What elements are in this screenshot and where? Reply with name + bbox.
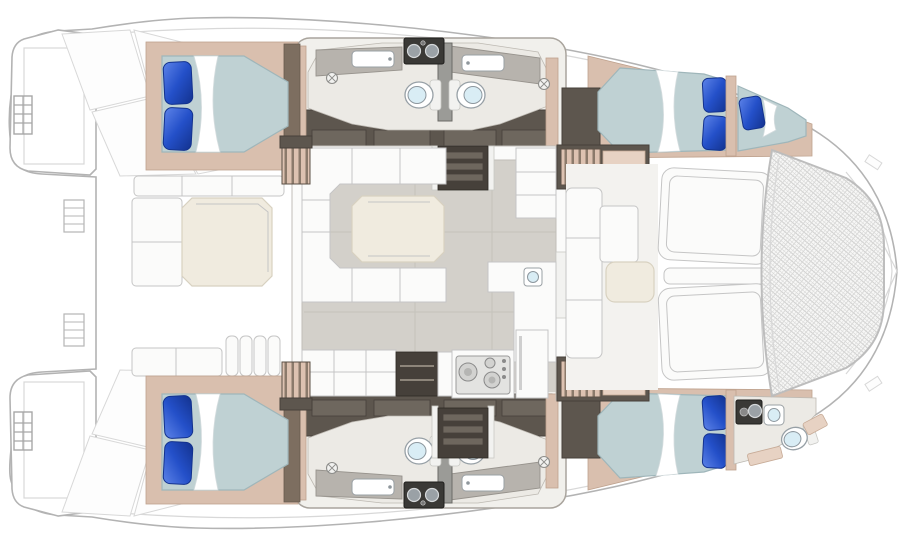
pillow xyxy=(163,107,193,150)
galley-fridge xyxy=(516,330,548,398)
floor-plan-canvas xyxy=(0,0,908,548)
galley-cooktop xyxy=(452,350,514,398)
starboard-hull-stairwell xyxy=(432,406,494,458)
port-heads xyxy=(298,38,558,152)
forepeak-partition xyxy=(726,76,736,156)
shower-drain xyxy=(327,73,338,84)
pillow xyxy=(702,77,728,112)
sun-pad-port xyxy=(658,167,773,265)
galley-counter xyxy=(302,350,396,396)
transom-step-fitting-port xyxy=(64,200,84,232)
basin xyxy=(764,405,784,425)
sun-pad-center-bench xyxy=(664,268,768,284)
starboard-bow-head xyxy=(726,390,828,470)
bow-roller-starboard xyxy=(865,376,882,391)
toilet xyxy=(405,80,441,110)
aft-cockpit-table xyxy=(182,198,272,286)
bow-roller-port xyxy=(865,155,882,170)
shower-drain xyxy=(539,79,550,90)
twin-basin-vanity xyxy=(404,38,444,64)
transom-step-fitting-starboard xyxy=(64,314,84,346)
catamaran-floor-plan xyxy=(0,0,908,548)
forward-cockpit-console xyxy=(600,206,638,262)
toilet xyxy=(449,80,485,110)
cabin-dressing-area xyxy=(562,88,600,150)
cockpit-aft-bench xyxy=(134,176,284,196)
starboard-heads xyxy=(298,394,558,508)
salon-cabinet xyxy=(516,148,556,218)
salon-table xyxy=(352,196,444,262)
port-aft-cabin xyxy=(146,42,312,184)
cabin-entry-header xyxy=(280,136,312,148)
bow-head-vanity xyxy=(736,400,762,424)
cockpit-fwd-bench xyxy=(132,348,222,376)
starboard-aft-cabin xyxy=(146,362,312,504)
galley-shelves xyxy=(396,352,438,396)
pillow xyxy=(702,115,728,151)
salon-fwd-door xyxy=(556,252,566,318)
counter-sink xyxy=(524,268,542,286)
forward-cockpit-bench xyxy=(566,188,602,358)
forward-cockpit-table xyxy=(606,262,654,302)
pillow xyxy=(163,61,193,104)
forward-cockpit xyxy=(566,164,772,390)
sun-pad-starboard xyxy=(658,283,773,381)
cabin-entry-steps xyxy=(282,146,310,184)
heads-inner-wall xyxy=(546,58,558,152)
basin xyxy=(352,51,394,67)
